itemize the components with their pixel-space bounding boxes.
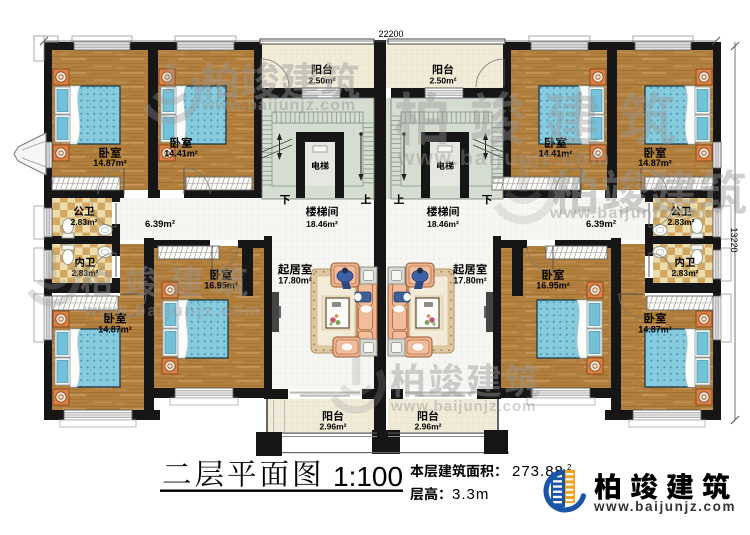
svg-text:www.baijunjz.com: www.baijunjz.com (397, 147, 611, 170)
svg-text:14.87m²: 14.87m² (98, 325, 132, 335)
svg-text:www.baijunjz.com: www.baijunjz.com (593, 499, 736, 514)
svg-text:13220: 13220 (729, 227, 739, 252)
svg-text:16.95m²: 16.95m² (536, 281, 570, 291)
svg-text:14.87m²: 14.87m² (638, 325, 672, 335)
svg-text:14.41m²: 14.41m² (164, 149, 198, 159)
svg-text:18.46m²: 18.46m² (306, 219, 338, 229)
svg-text:www.baijunjz.com: www.baijunjz.com (390, 398, 536, 415)
svg-text:2.96m²: 2.96m² (415, 422, 442, 432)
svg-text:www.baijunjz.com: www.baijunjz.com (83, 302, 262, 320)
svg-text:2.50m²: 2.50m² (430, 76, 457, 86)
svg-text:1:100: 1:100 (333, 461, 403, 492)
svg-text:3.3m: 3.3m (452, 486, 489, 503)
svg-text:14.87m²: 14.87m² (93, 158, 127, 168)
svg-text:www.baijunjz.com: www.baijunjz.com (201, 97, 356, 114)
svg-text:14.87m²: 14.87m² (638, 158, 672, 168)
svg-text:www.baijunjz.com: www.baijunjz.com (549, 205, 712, 222)
svg-text:2.83m²: 2.83m² (71, 217, 98, 227)
svg-text:2.96m²: 2.96m² (320, 422, 347, 432)
svg-text:18.46m²: 18.46m² (427, 219, 459, 229)
svg-text:2.83m²: 2.83m² (672, 268, 699, 278)
svg-text:17.80m²: 17.80m² (278, 276, 312, 286)
svg-text:22200: 22200 (378, 29, 403, 39)
svg-text:17.80m²: 17.80m² (453, 276, 487, 286)
svg-text:6.39m²: 6.39m² (145, 219, 175, 230)
